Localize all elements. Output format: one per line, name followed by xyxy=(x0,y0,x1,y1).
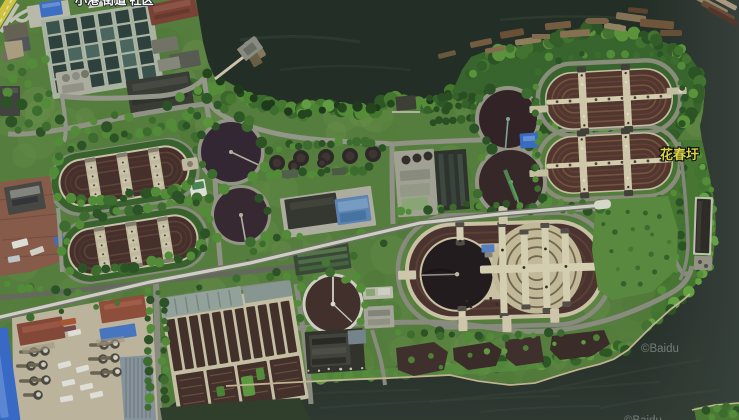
svg-text:©Baidu: ©Baidu xyxy=(641,343,679,355)
svg-text:花春圩: 花春圩 xyxy=(660,147,699,162)
svg-text:小港 街道 社区: 小港 街道 社区 xyxy=(75,0,154,7)
svg-text:©Baidu: ©Baidu xyxy=(624,415,662,420)
